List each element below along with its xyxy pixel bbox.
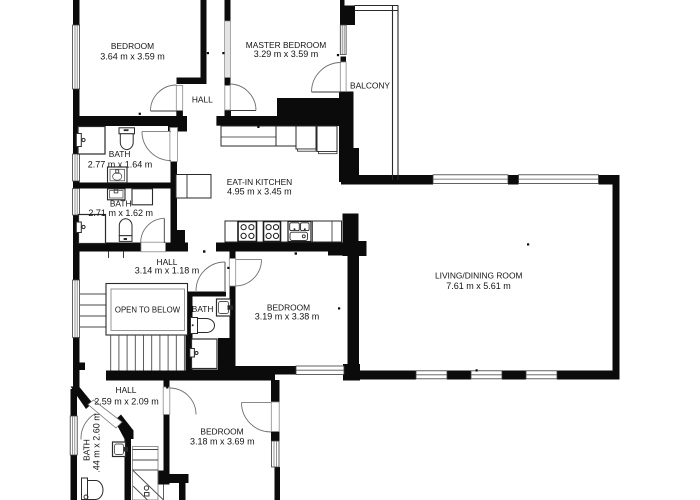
svg-text:3.29 m x 3.59 m: 3.29 m x 3.59 m [254, 49, 319, 59]
svg-text:BATH: BATH [81, 439, 91, 461]
svg-text:OPEN TO BELOW: OPEN TO BELOW [115, 306, 181, 315]
svg-text:BATH: BATH [192, 304, 214, 314]
svg-text:LIVING/DINING ROOM: LIVING/DINING ROOM [435, 270, 523, 280]
svg-text:3.18 m x 3.69 m: 3.18 m x 3.69 m [190, 436, 255, 446]
svg-text:BATH: BATH [109, 149, 131, 159]
svg-text:2.71 m x 1.62 m: 2.71 m x 1.62 m [88, 208, 153, 218]
svg-text:4.95 m x 3.45 m: 4.95 m x 3.45 m [227, 186, 292, 196]
svg-text:2.59 m x 2.09 m: 2.59 m x 2.09 m [94, 396, 159, 406]
svg-text:2.77 m x 1.64 m: 2.77 m x 1.64 m [88, 160, 153, 170]
svg-text:BALCONY: BALCONY [350, 81, 390, 91]
svg-text:3.14 m x 1.18 m: 3.14 m x 1.18 m [135, 265, 200, 275]
svg-text:7.61 m x 5.61 m: 7.61 m x 5.61 m [446, 281, 511, 291]
svg-text:HALL: HALL [192, 95, 213, 105]
svg-text:3.19 m x 3.38 m: 3.19 m x 3.38 m [255, 312, 320, 322]
svg-text:3.64 m x 3.59 m: 3.64 m x 3.59 m [100, 52, 165, 62]
svg-text:BEDROOM: BEDROOM [200, 426, 243, 436]
svg-text:.44 m x 2.60 m: .44 m x 2.60 m [92, 413, 102, 473]
svg-text:BEDROOM: BEDROOM [111, 41, 154, 51]
svg-text:HALL: HALL [116, 385, 137, 395]
